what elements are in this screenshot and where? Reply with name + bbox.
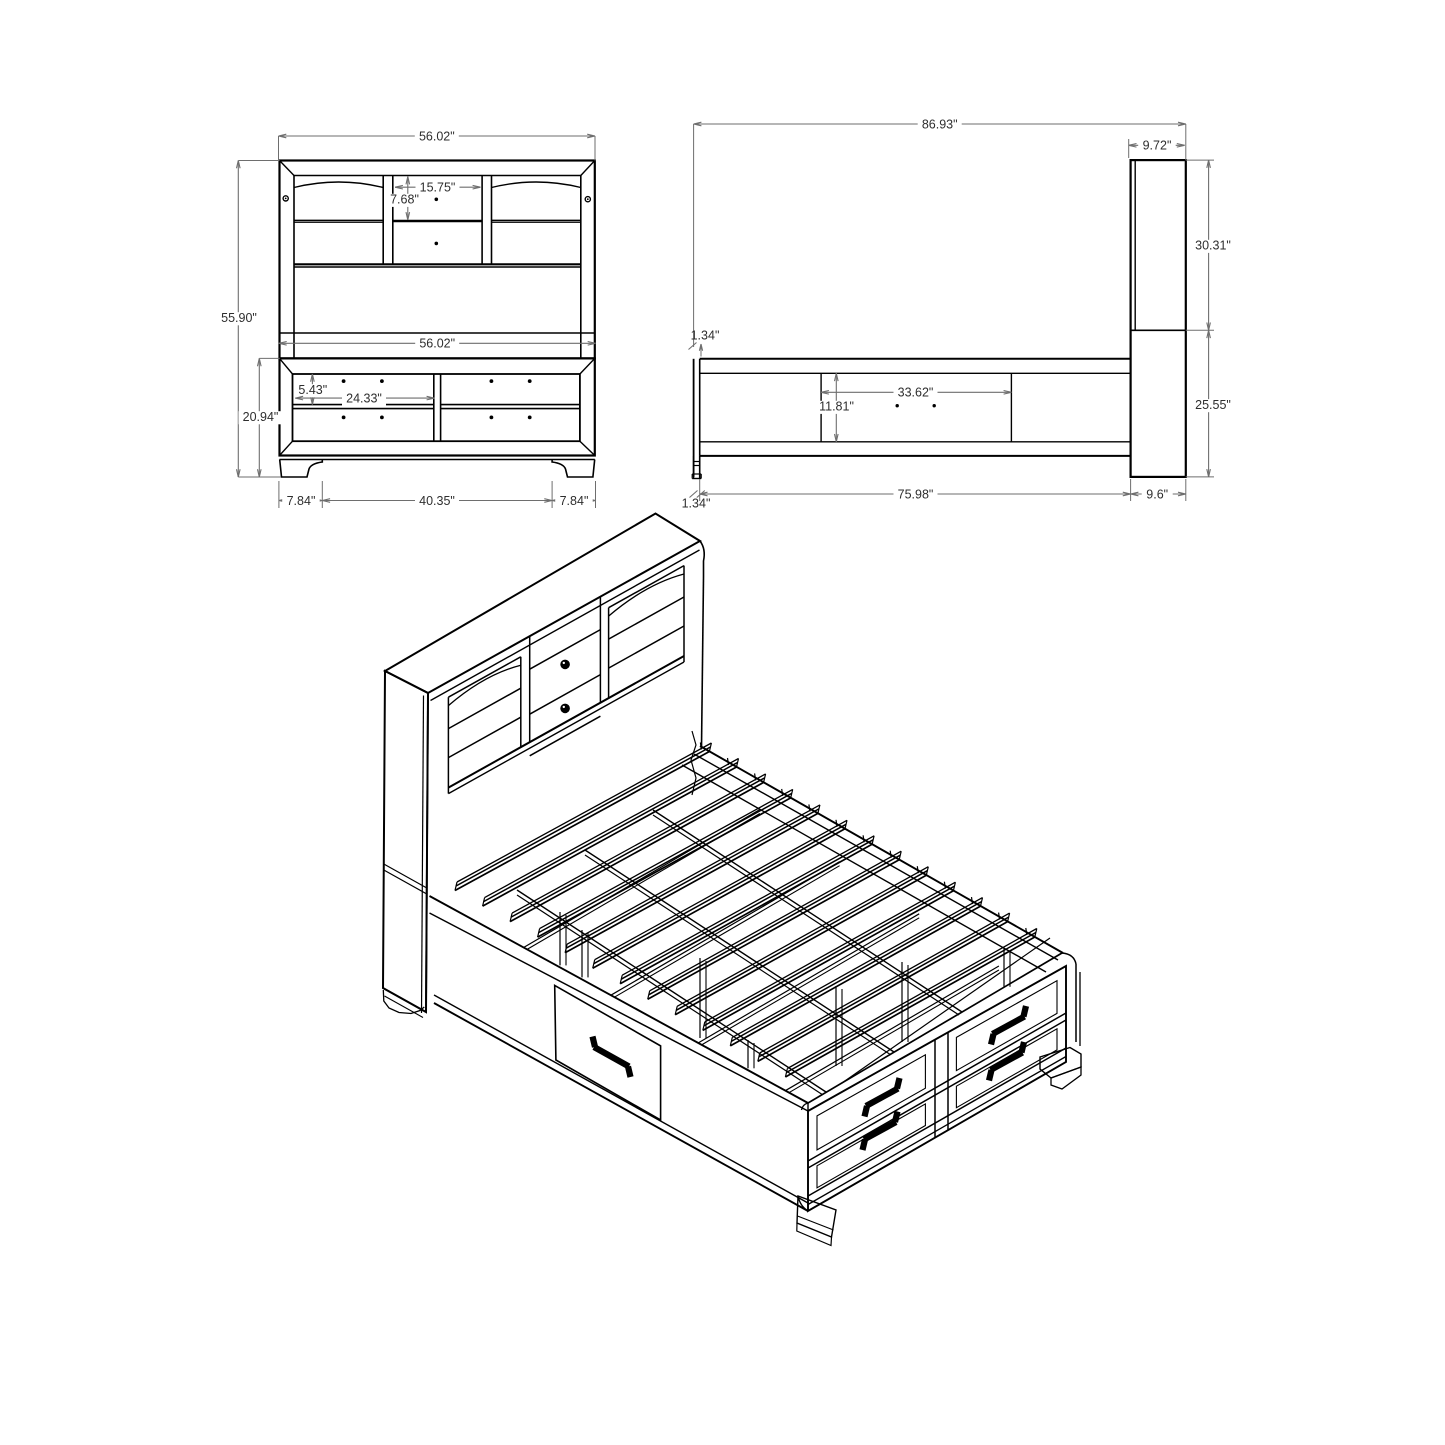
svg-text:75.98": 75.98" bbox=[898, 487, 934, 501]
svg-text:33.62": 33.62" bbox=[898, 386, 934, 400]
svg-text:1.34": 1.34" bbox=[682, 497, 711, 511]
svg-text:11.81": 11.81" bbox=[819, 400, 854, 414]
svg-text:15.75": 15.75" bbox=[420, 181, 456, 195]
svg-text:5.43": 5.43" bbox=[298, 383, 327, 397]
svg-text:20.94": 20.94" bbox=[243, 410, 279, 424]
svg-text:7.68": 7.68" bbox=[390, 193, 419, 207]
svg-text:9.6": 9.6" bbox=[1146, 487, 1168, 501]
svg-text:7.84": 7.84" bbox=[560, 494, 589, 508]
svg-text:56.02": 56.02" bbox=[419, 129, 455, 143]
svg-text:40.35": 40.35" bbox=[419, 494, 455, 508]
svg-text:25.55": 25.55" bbox=[1195, 398, 1231, 412]
svg-text:30.31": 30.31" bbox=[1195, 239, 1231, 253]
svg-text:86.93": 86.93" bbox=[922, 117, 958, 131]
svg-text:9.72": 9.72" bbox=[1143, 139, 1172, 153]
svg-text:1.34": 1.34" bbox=[691, 329, 720, 343]
svg-text:7.84": 7.84" bbox=[287, 494, 316, 508]
svg-text:55.90": 55.90" bbox=[221, 311, 257, 325]
svg-text:56.02": 56.02" bbox=[419, 337, 455, 351]
svg-text:24.33": 24.33" bbox=[346, 391, 382, 405]
